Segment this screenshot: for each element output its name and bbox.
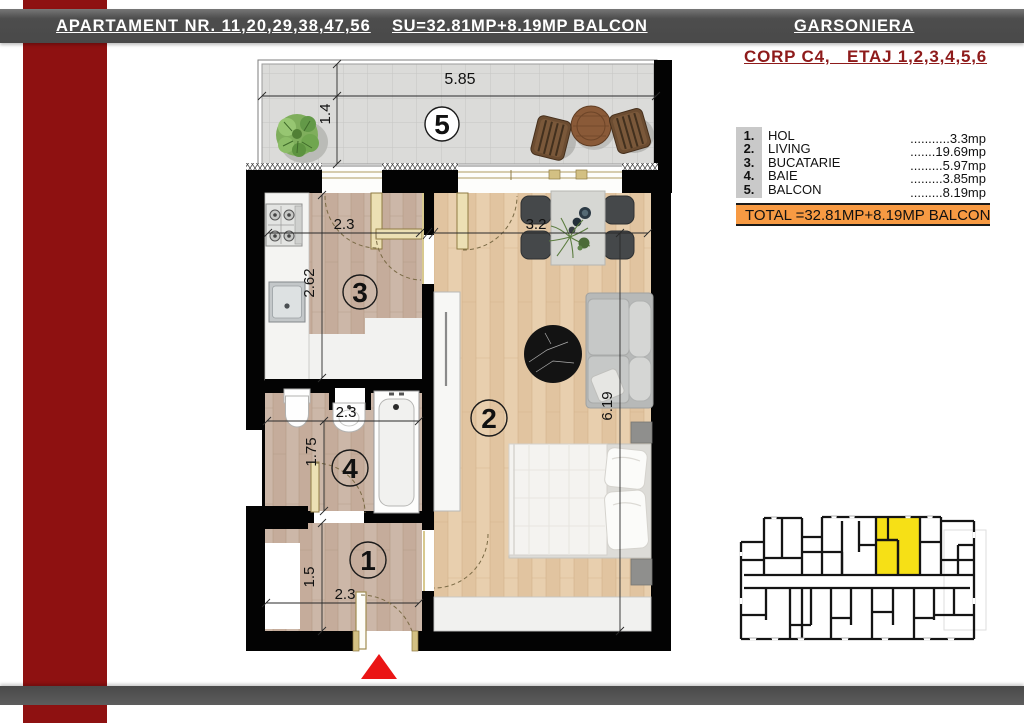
svg-text:2: 2 [481, 403, 497, 434]
svg-text:1.75: 1.75 [303, 437, 320, 466]
svg-text:2.3: 2.3 [334, 216, 355, 233]
svg-text:2.3: 2.3 [336, 404, 357, 421]
svg-text:5.85: 5.85 [444, 71, 475, 88]
svg-text:5: 5 [434, 109, 450, 140]
svg-text:1.5: 1.5 [301, 567, 318, 588]
svg-text:4: 4 [342, 453, 358, 484]
svg-text:1: 1 [360, 545, 376, 576]
svg-text:1.4: 1.4 [317, 104, 334, 125]
svg-text:2.62: 2.62 [301, 268, 318, 297]
svg-text:2.3: 2.3 [335, 586, 356, 603]
svg-text:3.2: 3.2 [526, 216, 547, 233]
svg-text:3: 3 [352, 277, 368, 308]
svg-text:6.19: 6.19 [599, 391, 616, 420]
